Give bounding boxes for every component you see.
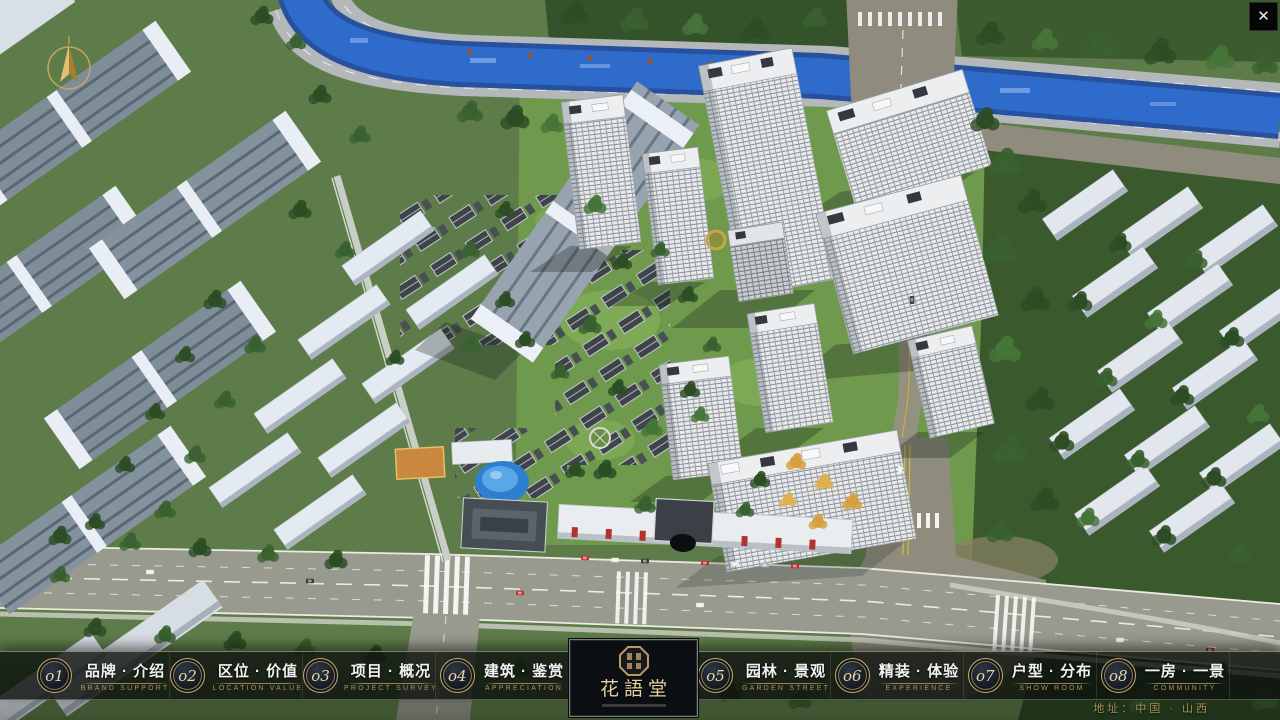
brand-caption-line (602, 704, 666, 707)
nav-number-badge: o3 (303, 658, 338, 693)
nav-number-badge: o7 (968, 658, 1003, 693)
nav-number-badge: o6 (835, 658, 870, 693)
nav-item-architecture-appreciation[interactable]: o4 建筑 · 鉴赏 APPRECIATION (436, 652, 569, 699)
gold-divider (742, 683, 830, 684)
nav-label-zh: 户型 · 分布 (1012, 660, 1092, 681)
close-icon: ✕ (1257, 9, 1270, 24)
nav-number-badge: o8 (1101, 658, 1136, 693)
nav-label-zh: 一房 · 一景 (1145, 660, 1225, 681)
nav-label-en: LOCATION VALUE (213, 685, 303, 692)
nav-label-en: BRAND SUPPORT (81, 685, 170, 692)
nav-label-en: PROJECT SURVEY (344, 685, 438, 692)
nav-item-interior-experience[interactable]: o6 精装 · 体验 EXPERIENCE (831, 652, 964, 699)
nav-label-zh: 建筑 · 鉴赏 (484, 660, 564, 681)
nav-spacer-right (1230, 652, 1280, 699)
gold-divider (214, 683, 302, 684)
nav-label: 建筑 · 鉴赏 APPRECIATION (484, 660, 564, 692)
gold-divider (484, 683, 564, 684)
brand-title: 花語堂 (595, 680, 672, 699)
nav-number-badge: o4 (440, 658, 475, 693)
nav-label-en: EXPERIENCE (885, 685, 952, 692)
nav-spacer-left (0, 652, 37, 699)
nav-label: 一房 · 一景 COMMUNITY (1145, 660, 1225, 692)
nav-item-floorplan-distribution[interactable]: o7 户型 · 分布 SHOW ROOM (964, 652, 1097, 699)
gold-divider (1145, 683, 1225, 684)
seal-icon (617, 644, 651, 678)
nav-label: 精装 · 体验 EXPERIENCE (879, 660, 959, 692)
nav-item-location-value[interactable]: o2 区位 · 价值 LOCATION VALUE (170, 652, 303, 699)
nav-label: 项目 · 概况 PROJECT SURVEY (347, 660, 435, 692)
bottom-nav-bar: o1 品牌 · 介绍 BRAND SUPPORT o2 区位 · 价值 LOCA… (0, 651, 1280, 700)
nav-item-brand-intro[interactable]: o1 品牌 · 介绍 BRAND SUPPORT (37, 652, 170, 699)
nav-label-zh: 区位 · 价值 (218, 660, 298, 681)
nav-label: 户型 · 分布 SHOW ROOM (1012, 660, 1092, 692)
nav-label-en: SHOW ROOM (1019, 685, 1084, 692)
nav-item-garden-landscape[interactable]: o5 园林 · 景观 GARDEN STREET (698, 652, 831, 699)
nav-label-zh: 项目 · 概况 (351, 660, 431, 681)
nav-label: 品牌 · 介绍 BRAND SUPPORT (81, 660, 169, 692)
nav-label-zh: 精装 · 体验 (879, 660, 959, 681)
close-button[interactable]: ✕ (1249, 2, 1278, 31)
site-plan-3d-rendering (0, 0, 1280, 720)
nav-number-badge: o5 (698, 658, 733, 693)
nav-number-badge: o2 (170, 658, 205, 693)
nav-label: 园林 · 景观 GARDEN STREET (742, 660, 830, 692)
nav-label-en: APPRECIATION (485, 685, 563, 692)
logo-panel[interactable]: 花語堂 (569, 639, 698, 717)
master-plan-viewport[interactable]: ✕ 地址：中国 · 山西 o1 品牌 · 介绍 BRAND SUPPORT o2… (0, 0, 1280, 720)
nav-item-room-view[interactable]: o8 一房 · 一景 COMMUNITY (1097, 652, 1230, 699)
gold-divider (879, 683, 959, 684)
nav-number-badge: o1 (37, 658, 72, 693)
nav-label: 区位 · 价值 LOCATION VALUE (214, 660, 302, 692)
gold-divider (1012, 683, 1092, 684)
nav-label-en: GARDEN STREET (742, 685, 830, 692)
address-note: 地址：中国 · 山西 (1093, 700, 1210, 716)
nav-label-en: COMMUNITY (1154, 685, 1217, 692)
nav-label-zh: 园林 · 景观 (746, 660, 826, 681)
nav-label-zh: 品牌 · 介绍 (85, 660, 165, 681)
nav-item-project-overview[interactable]: o3 项目 · 概况 PROJECT SURVEY (303, 652, 436, 699)
gold-divider (81, 683, 169, 684)
gold-divider (347, 683, 435, 684)
